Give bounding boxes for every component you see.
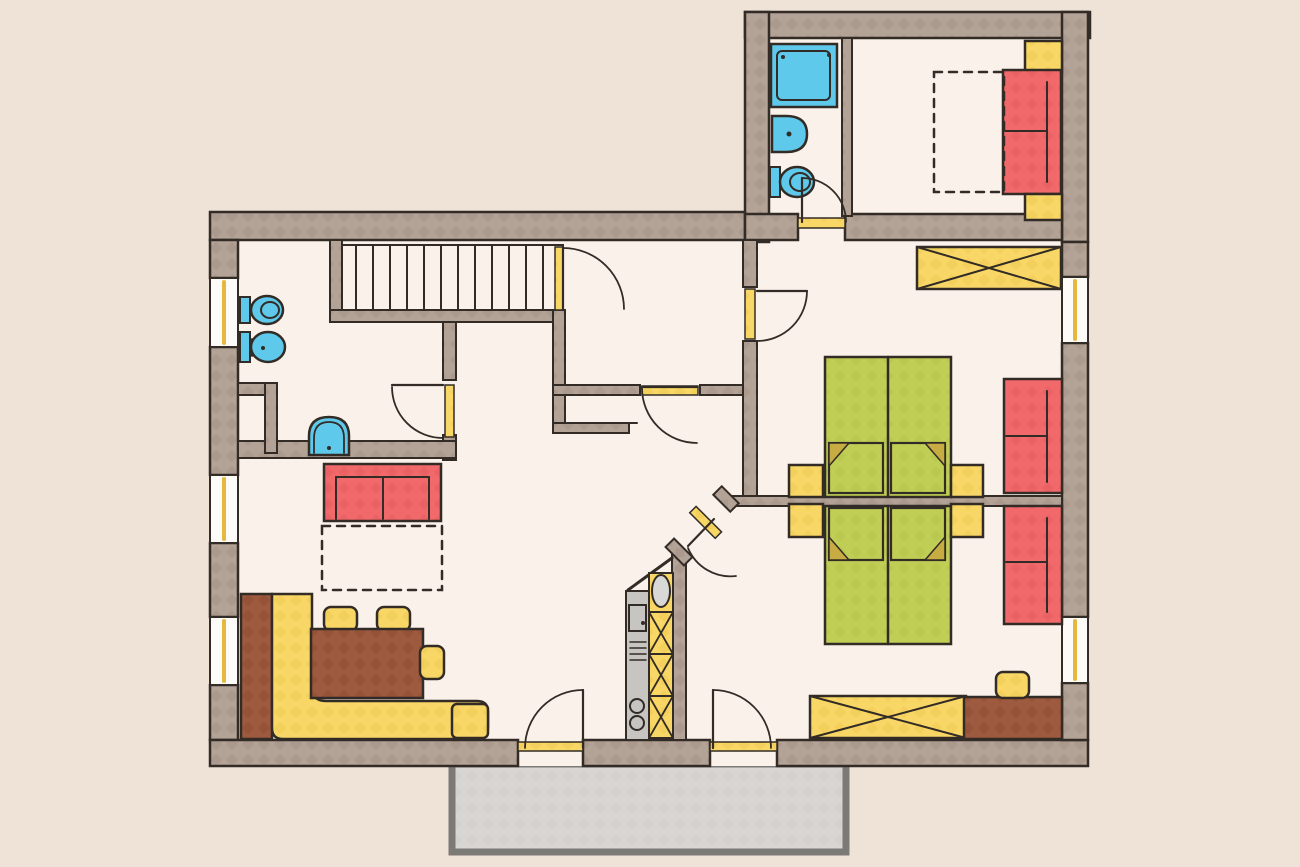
door-sill-bedroom1: [745, 289, 755, 339]
wall-right-1: [1062, 242, 1088, 277]
desk-bedroom2: [964, 697, 1062, 739]
wall-left-1: [210, 240, 238, 278]
bench-end-cushion: [452, 704, 488, 738]
dining-chair: [377, 607, 410, 631]
wall-wing-right: [1062, 12, 1088, 242]
dining-table: [311, 629, 423, 698]
floor-plan-drawing: [0, 0, 1300, 867]
door-sill-balcony-2: [710, 742, 777, 751]
kitchen-basin-dot: [641, 621, 645, 625]
wall-right-2: [1062, 343, 1088, 617]
wall-bottom-3: [777, 740, 1088, 766]
floor-plan-canvas: [0, 0, 1300, 867]
nightstand: [951, 465, 983, 497]
wall-band-left: [745, 214, 798, 240]
dining-chair: [324, 607, 357, 631]
wall-left-2: [210, 347, 238, 475]
wall-kitchen: [672, 553, 686, 740]
wall-hall-bedroom-a: [743, 240, 757, 287]
bath-toilet-tank: [770, 167, 780, 197]
nightstand: [789, 465, 823, 497]
door-sill-stairs: [555, 247, 563, 310]
shower-dot: [827, 53, 831, 57]
bath-toilet-bowl: [780, 167, 814, 197]
floor-plan-root: [210, 12, 1090, 852]
wall-wing-left: [745, 12, 769, 242]
hall-niche-slot: [565, 395, 637, 423]
wc-bidet-dot: [250, 338, 254, 342]
sideboard-living: [241, 594, 272, 739]
balcony: [452, 764, 846, 852]
wall-stairs-bottom: [330, 310, 563, 322]
nightstand: [789, 504, 823, 537]
bath-sink-dot: [787, 132, 792, 137]
wall-left-4: [210, 685, 238, 740]
wall-right-3: [1062, 683, 1088, 740]
wall-bottom-1: [210, 740, 518, 766]
shower-dot: [781, 55, 785, 59]
wall-main-top: [210, 212, 745, 240]
wc-toilet-tank: [240, 297, 250, 323]
nightstand: [951, 504, 983, 537]
dining-chair: [420, 646, 444, 679]
wall-wc-niche-vert: [265, 383, 277, 453]
staircase-floor: [342, 245, 563, 310]
wall-wing-top: [745, 12, 1090, 38]
nightstand: [1025, 194, 1062, 220]
nightstand: [1025, 41, 1062, 72]
wall-wc-a: [443, 322, 456, 380]
wall-bottom-2: [583, 740, 710, 766]
wall-niche-vertical: [553, 310, 565, 433]
door-sill-wc: [445, 385, 454, 437]
sofa-bedroom2: [1004, 506, 1062, 624]
wall-hall-left: [553, 385, 640, 395]
wall-left-3: [210, 543, 238, 617]
wc-basin-dot: [327, 446, 331, 450]
shower: [771, 44, 837, 107]
desk-chair: [996, 672, 1029, 698]
wc-bidet-bowl: [251, 332, 285, 362]
wc-bidet-tank: [240, 332, 250, 362]
door-sill-balcony-1: [518, 742, 583, 751]
door-sill-bathroom: [798, 218, 845, 228]
wc-bidet-dot: [250, 353, 254, 357]
wall-niche-bottom: [553, 423, 629, 433]
wall-hall-bedroom-b: [743, 341, 757, 496]
wc-bidet-dot: [261, 346, 265, 350]
kitchen-sink: [652, 575, 670, 607]
wall-bath-divider: [842, 38, 852, 216]
